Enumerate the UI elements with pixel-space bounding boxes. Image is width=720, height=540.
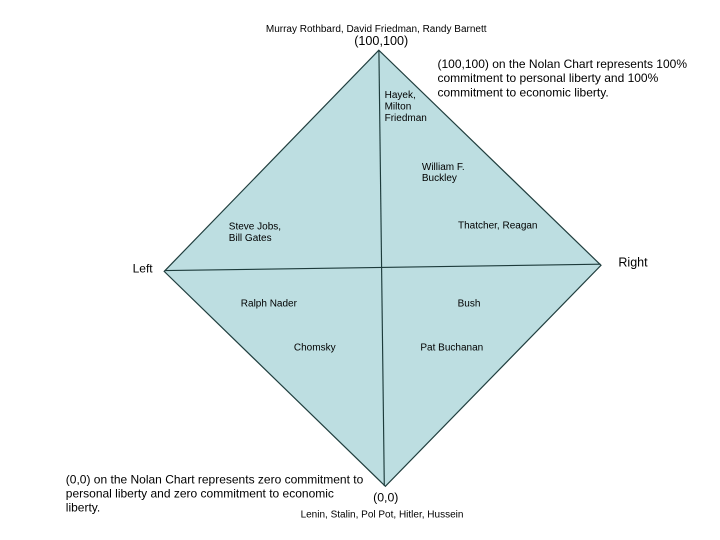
svg-text:Thatcher, Reagan: Thatcher, Reagan: [458, 221, 538, 232]
svg-text:William F.: William F.: [422, 162, 465, 173]
svg-text:(100,100) on the Nolan Chart r: (100,100) on the Nolan Chart represents …: [438, 57, 688, 71]
svg-text:Chomsky: Chomsky: [294, 342, 336, 353]
svg-text:(0,0) on the Nolan Chart repre: (0,0) on the Nolan Chart represents zero…: [66, 472, 364, 486]
svg-text:commitment to personal liberty: commitment to personal liberty and 100%: [438, 71, 659, 85]
svg-text:Bill Gates: Bill Gates: [229, 233, 272, 244]
svg-text:liberty.: liberty.: [66, 501, 100, 515]
svg-text:Bush: Bush: [458, 299, 481, 310]
svg-text:Ralph Nader: Ralph Nader: [241, 298, 298, 309]
svg-text:Buckley: Buckley: [422, 173, 457, 184]
svg-text:(0,0): (0,0): [373, 491, 398, 505]
svg-text:Friedman: Friedman: [385, 113, 427, 124]
svg-text:Lenin, Stalin, Pol Pot, Hitler: Lenin, Stalin, Pol Pot, Hitler, Hussein: [301, 510, 464, 521]
svg-text:Pat Buchanan: Pat Buchanan: [420, 342, 483, 353]
svg-text:Hayek,: Hayek,: [385, 90, 416, 101]
svg-text:Right: Right: [618, 255, 648, 269]
svg-text:(100,100): (100,100): [354, 34, 408, 48]
svg-text:personal liberty and zero comm: personal liberty and zero commitment to …: [66, 486, 334, 500]
svg-text:Steve Jobs,: Steve Jobs,: [229, 222, 281, 233]
svg-text:Milton: Milton: [385, 102, 412, 113]
svg-text:Left: Left: [133, 262, 154, 276]
svg-text:commitment to economic liberty: commitment to economic liberty.: [438, 85, 609, 99]
